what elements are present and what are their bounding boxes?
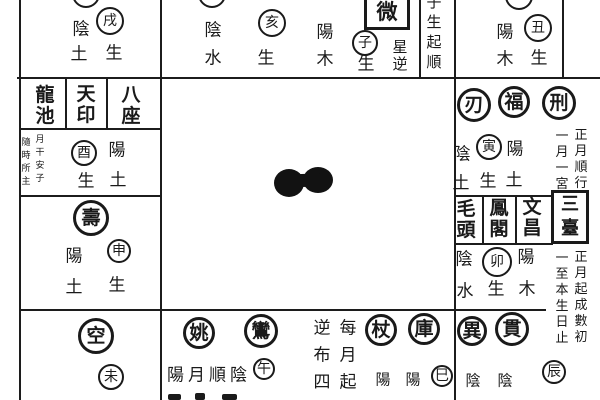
branch-circle-si: 巳: [431, 365, 453, 387]
branch-circle-xu: 戌: [96, 7, 124, 35]
star-box-ziwei: 微: [364, 0, 410, 30]
note-star-reverse: 星 逆: [392, 39, 407, 73]
grid-line: [65, 79, 67, 130]
branch-circle-hai: 亥: [258, 9, 286, 37]
star-box-santai: 三 臺: [551, 190, 589, 244]
star-circle-zhang: 杖: [365, 314, 397, 346]
star-circle-ren: 刃: [457, 88, 491, 122]
note-sui-shi-suo-zhu: 隨 時 所 主: [21, 137, 30, 189]
grid-line: [482, 196, 484, 244]
branch-circle-yin: 寅: [476, 134, 502, 160]
label-earth-shen: 土: [66, 280, 83, 297]
clipped-text-fragment: [195, 393, 205, 400]
label-yang-yinpalace: 陽: [507, 142, 524, 159]
note-ni-bu-si: 逆 布 四: [314, 316, 331, 397]
label-sheng-you: 生: [78, 174, 95, 191]
star-circle-xing: 刑: [542, 86, 576, 120]
label-yang-mao: 陽: [518, 250, 535, 267]
star-circle-kong: 空: [78, 318, 114, 354]
label-wood-mao: 木: [519, 282, 536, 299]
grid-line: [562, 0, 564, 79]
label-yin-hai: 陰: [205, 23, 222, 40]
label-earth-xu: 土: [71, 47, 88, 64]
grid-line: [419, 0, 421, 79]
label-sheng-yinpalace: 生: [480, 174, 497, 191]
label-sheng-shen: 生: [109, 278, 126, 295]
branch-circle-mao: 卯: [482, 247, 512, 277]
label-yang-si-2: 陽: [405, 373, 420, 388]
star-circle-yi: 異: [457, 316, 487, 346]
label-earth-you: 土: [110, 173, 127, 190]
note-mei-yue-qi: 每 月 起: [340, 316, 357, 397]
note-yi-yue-yi-gong: 一 月 一 宮: [555, 129, 568, 193]
star-box-longchi: 龍 池: [35, 85, 54, 127]
star-circle-luan: 鸞: [244, 314, 278, 348]
grid-line: [19, 195, 162, 197]
branch-circle-wei: 未: [98, 364, 124, 390]
label-yin-yinpalace: 陰: [454, 147, 471, 164]
grid-line: [19, 309, 546, 311]
branch-circle-wu: 午: [253, 358, 275, 380]
branch-circle-zi: 子: [352, 30, 378, 56]
label-yin-xu: 陰: [73, 22, 90, 39]
grid-line: [454, 243, 553, 245]
grid-line: [160, 0, 162, 400]
label-sheng-chou: 生: [531, 51, 548, 68]
grid-line: [19, 0, 21, 400]
label-yang-chou: 陽: [497, 25, 514, 42]
star-circle-shou: 壽: [73, 200, 109, 236]
label-yang-you: 陽: [109, 143, 126, 160]
label-sheng-hai: 生: [258, 51, 275, 68]
clipped-text-fragment: [222, 394, 237, 400]
label-sheng-mao: 生: [488, 282, 505, 299]
star-box-bazuo: 八 座: [121, 85, 140, 127]
label-wood-zi: 木: [317, 52, 334, 69]
star-circle-fu: 福: [498, 86, 530, 118]
star-box-wenchang: 文 昌: [522, 197, 541, 239]
star-box-maotou: 毛 頭: [456, 199, 475, 241]
note-yi-zhi-ben-sheng-ri-zhi: 一 至 本 生 日 止: [555, 251, 568, 347]
note-zheng-yue-shun-xing: 正 月 順 行: [574, 128, 587, 192]
label-yang-si-1: 陽: [375, 373, 390, 388]
star-circle-ku: 庫: [408, 313, 440, 345]
star-circle-guan: 貫: [495, 312, 529, 346]
ink-blob: [270, 162, 336, 200]
star-circle-yao: 姚: [183, 317, 215, 349]
note-zheng-yue-qi-cheng-shu-chu: 正 月 起 成 數 初: [574, 250, 587, 346]
label-earth-yinpalace-1: 土: [453, 176, 470, 193]
branch-circle-you: 酉: [71, 140, 97, 166]
label-yin-chen-1: 陰: [465, 374, 480, 389]
label-yin-mao: 陰: [456, 252, 473, 269]
note-yue-gan-an-zi: 月 干 安 子: [35, 134, 44, 186]
grid-line: [17, 77, 600, 79]
branch-circle-chou: 丑: [524, 14, 552, 42]
label-water-mao: 水: [457, 284, 474, 301]
cutoff-circle-xu-palace: [72, 0, 100, 8]
star-box-fengge: 鳳 閣: [489, 198, 508, 240]
branch-circle-shen: 申: [107, 239, 131, 263]
label-yang-zi: 陽: [317, 25, 334, 42]
branch-circle-chen: 辰: [542, 360, 566, 384]
cutoff-circle-hai-palace: [198, 0, 226, 8]
label-yang-shen: 陽: [66, 249, 83, 266]
note-zi-sheng-qi-shun: 子 生 起 順: [426, 0, 441, 72]
label-sheng-zi: 生: [358, 57, 375, 74]
label-wood-chou: 木: [497, 52, 514, 69]
label-water-hai: 水: [205, 51, 222, 68]
label-yin-chen-2: 陰: [497, 374, 512, 389]
grid-line: [515, 196, 517, 244]
clipped-text-fragment: [168, 394, 181, 400]
grid-line: [106, 79, 108, 130]
note-yang-yue-shun-yin: 陽月順陰: [167, 368, 251, 385]
scanned-palace-chart-page: 戌陰土生陰水亥生微陽木子生星 逆子 生 起 順陽丑木生龍 池天 印八 座隨 時 …: [0, 0, 600, 400]
label-sheng-xu: 生: [106, 46, 123, 63]
cutoff-circle-chou-palace: [505, 0, 533, 10]
grid-line: [19, 128, 162, 130]
star-box-tianyin: 天 印: [76, 84, 95, 126]
label-earth-yinpalace-2: 土: [506, 173, 523, 190]
